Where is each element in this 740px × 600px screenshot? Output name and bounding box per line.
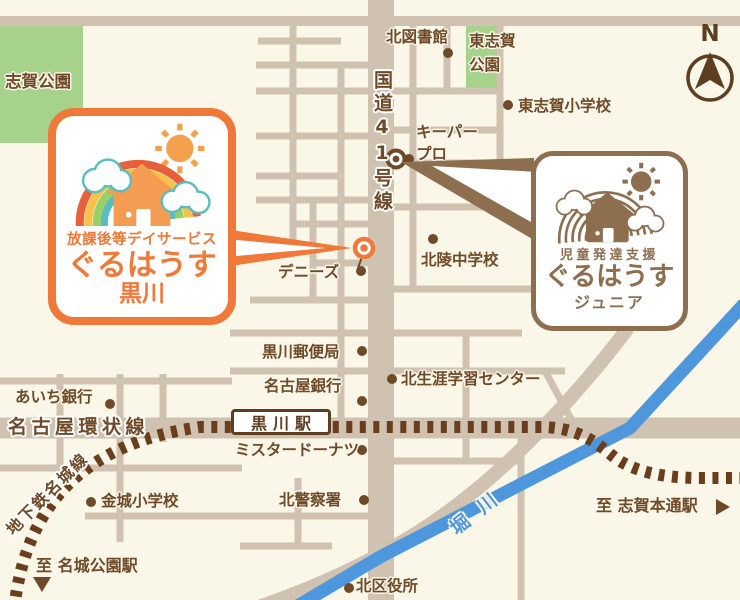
- poi-hokuryo-junior-high: 北陵中学校: [421, 250, 499, 270]
- direction-to-shiga-hondori: 至 志賀本通駅: [596, 496, 698, 517]
- poi-kita-ward-office: 北区役所: [356, 576, 418, 596]
- poi-aichi-bank: あいち銀行: [15, 387, 93, 407]
- hokuryo-junior-high-dot: [428, 234, 438, 244]
- main-callout-service: 放課後等デイサービス: [56, 228, 228, 249]
- arrow-right-icon: [716, 499, 730, 515]
- kita-police-dot: [359, 495, 369, 505]
- kita-library-dot: [443, 48, 453, 58]
- guruhausu-logo-icon: [63, 120, 221, 226]
- compass-north-label: N: [686, 22, 734, 47]
- guruhausu-junior-logo-icon: [550, 162, 670, 244]
- poi-keeper-pro: キーパー プロ: [416, 121, 478, 166]
- dennys-dot: [356, 266, 366, 276]
- poi-mister-donut: ミスタードーナツ: [235, 440, 359, 460]
- route-41-label: 国道41号線: [369, 70, 396, 214]
- junior-callout-service: 児童発達支援: [536, 244, 683, 263]
- poi-kita-lifelong-learning-center: 北生涯学習センター: [401, 369, 541, 389]
- direction-to-meijo-koen: 至 名城公園駅: [36, 556, 138, 577]
- junior-facility-callout: 児童発達支援 ぐるはうす ジュニア: [531, 151, 688, 331]
- cloud-left-icon: [557, 191, 591, 213]
- compass-icon: [686, 47, 734, 107]
- kinjo-elementary-dot: [86, 497, 96, 507]
- compass: N: [686, 22, 734, 111]
- main-callout-branch: 黒川: [56, 282, 228, 307]
- poi-kurokawa-post-office: 黒川郵便局: [262, 342, 340, 362]
- keeper-pro-line1: キーパー: [416, 121, 478, 143]
- arrow-down-icon: [33, 577, 51, 592]
- access-map: 国道41号線 名古屋環状線 地下鉄名城線 堀川 志賀公園 東志賀 公園 北図書館…: [0, 0, 740, 600]
- nagoya-bank-dot: [357, 396, 367, 406]
- junior-callout-name: ぐるはうす: [536, 263, 683, 293]
- aichi-bank-dot: [105, 399, 115, 409]
- main-facility-callout: 放課後等デイサービス ぐるはうす 黒川: [48, 108, 236, 325]
- kurokawa-station-box: 黒川駅: [231, 409, 331, 435]
- higashi-shiga-elementary-dot: [503, 100, 513, 110]
- poi-nagoya-bank: 名古屋銀行: [264, 376, 342, 396]
- higashi-shiga-park-line2: 公園: [469, 53, 516, 77]
- sun-icon: [622, 163, 659, 200]
- higashi-shiga-park-label: 東志賀 公園: [469, 29, 516, 77]
- junior-callout-branch: ジュニア: [536, 293, 683, 312]
- kanjo-line-label: 名古屋環状線: [8, 412, 149, 439]
- poi-kinjo-elementary: 金城小学校: [101, 491, 179, 511]
- kita-lifelong-learning-center-dot: [387, 374, 397, 384]
- main-callout-name: ぐるはうす: [56, 249, 228, 282]
- kurokawa-post-office-dot: [357, 346, 367, 356]
- higashi-shiga-park-line1: 東志賀: [469, 29, 516, 53]
- kita-ward-office-dot: [344, 583, 354, 593]
- poi-higashi-shiga-elementary: 東志賀小学校: [518, 96, 611, 116]
- poi-kita-police: 北警察署: [279, 490, 341, 510]
- poi-kita-library: 北図書館: [386, 27, 448, 47]
- poi-dennys: デニーズ: [278, 262, 339, 282]
- shiga-park-label: 志賀公園: [5, 71, 71, 92]
- keeper-pro-line2: プロ: [416, 143, 478, 165]
- kurokawa-station-label: 黒川駅: [251, 410, 317, 434]
